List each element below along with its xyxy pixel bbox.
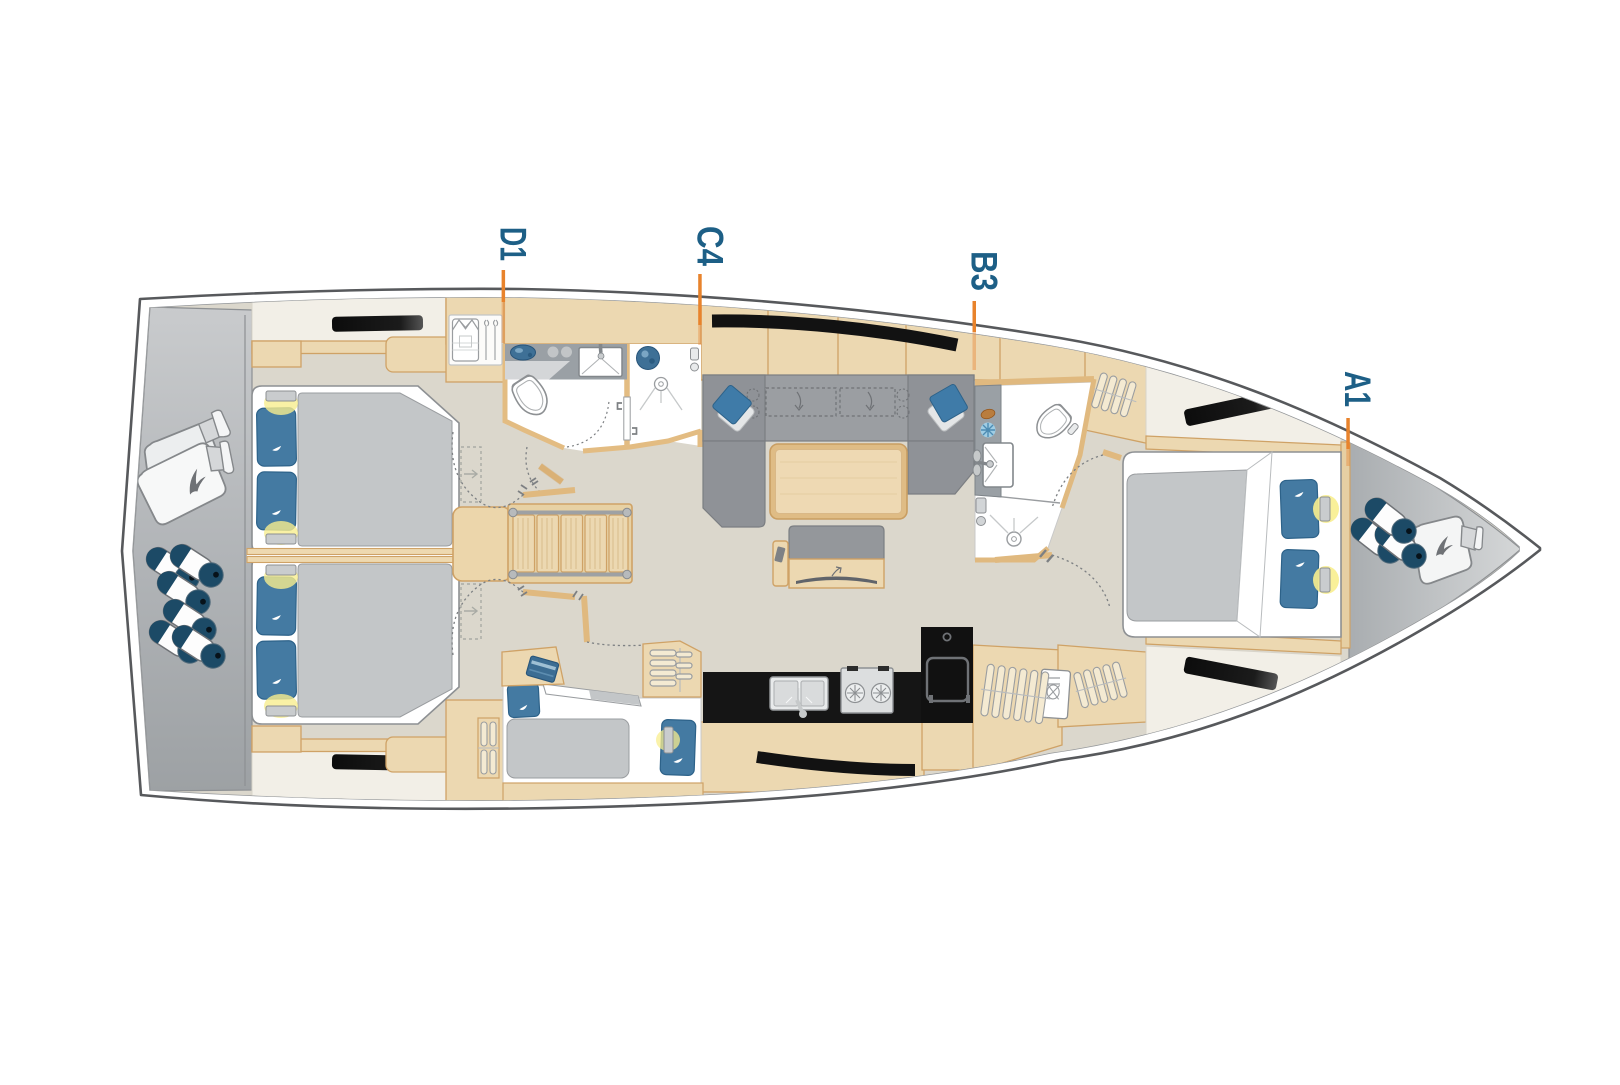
svg-text:D1: D1 <box>493 227 534 261</box>
svg-text:B3: B3 <box>964 251 1005 291</box>
svg-text:C4: C4 <box>690 226 731 266</box>
svg-text:A1: A1 <box>1337 371 1378 407</box>
